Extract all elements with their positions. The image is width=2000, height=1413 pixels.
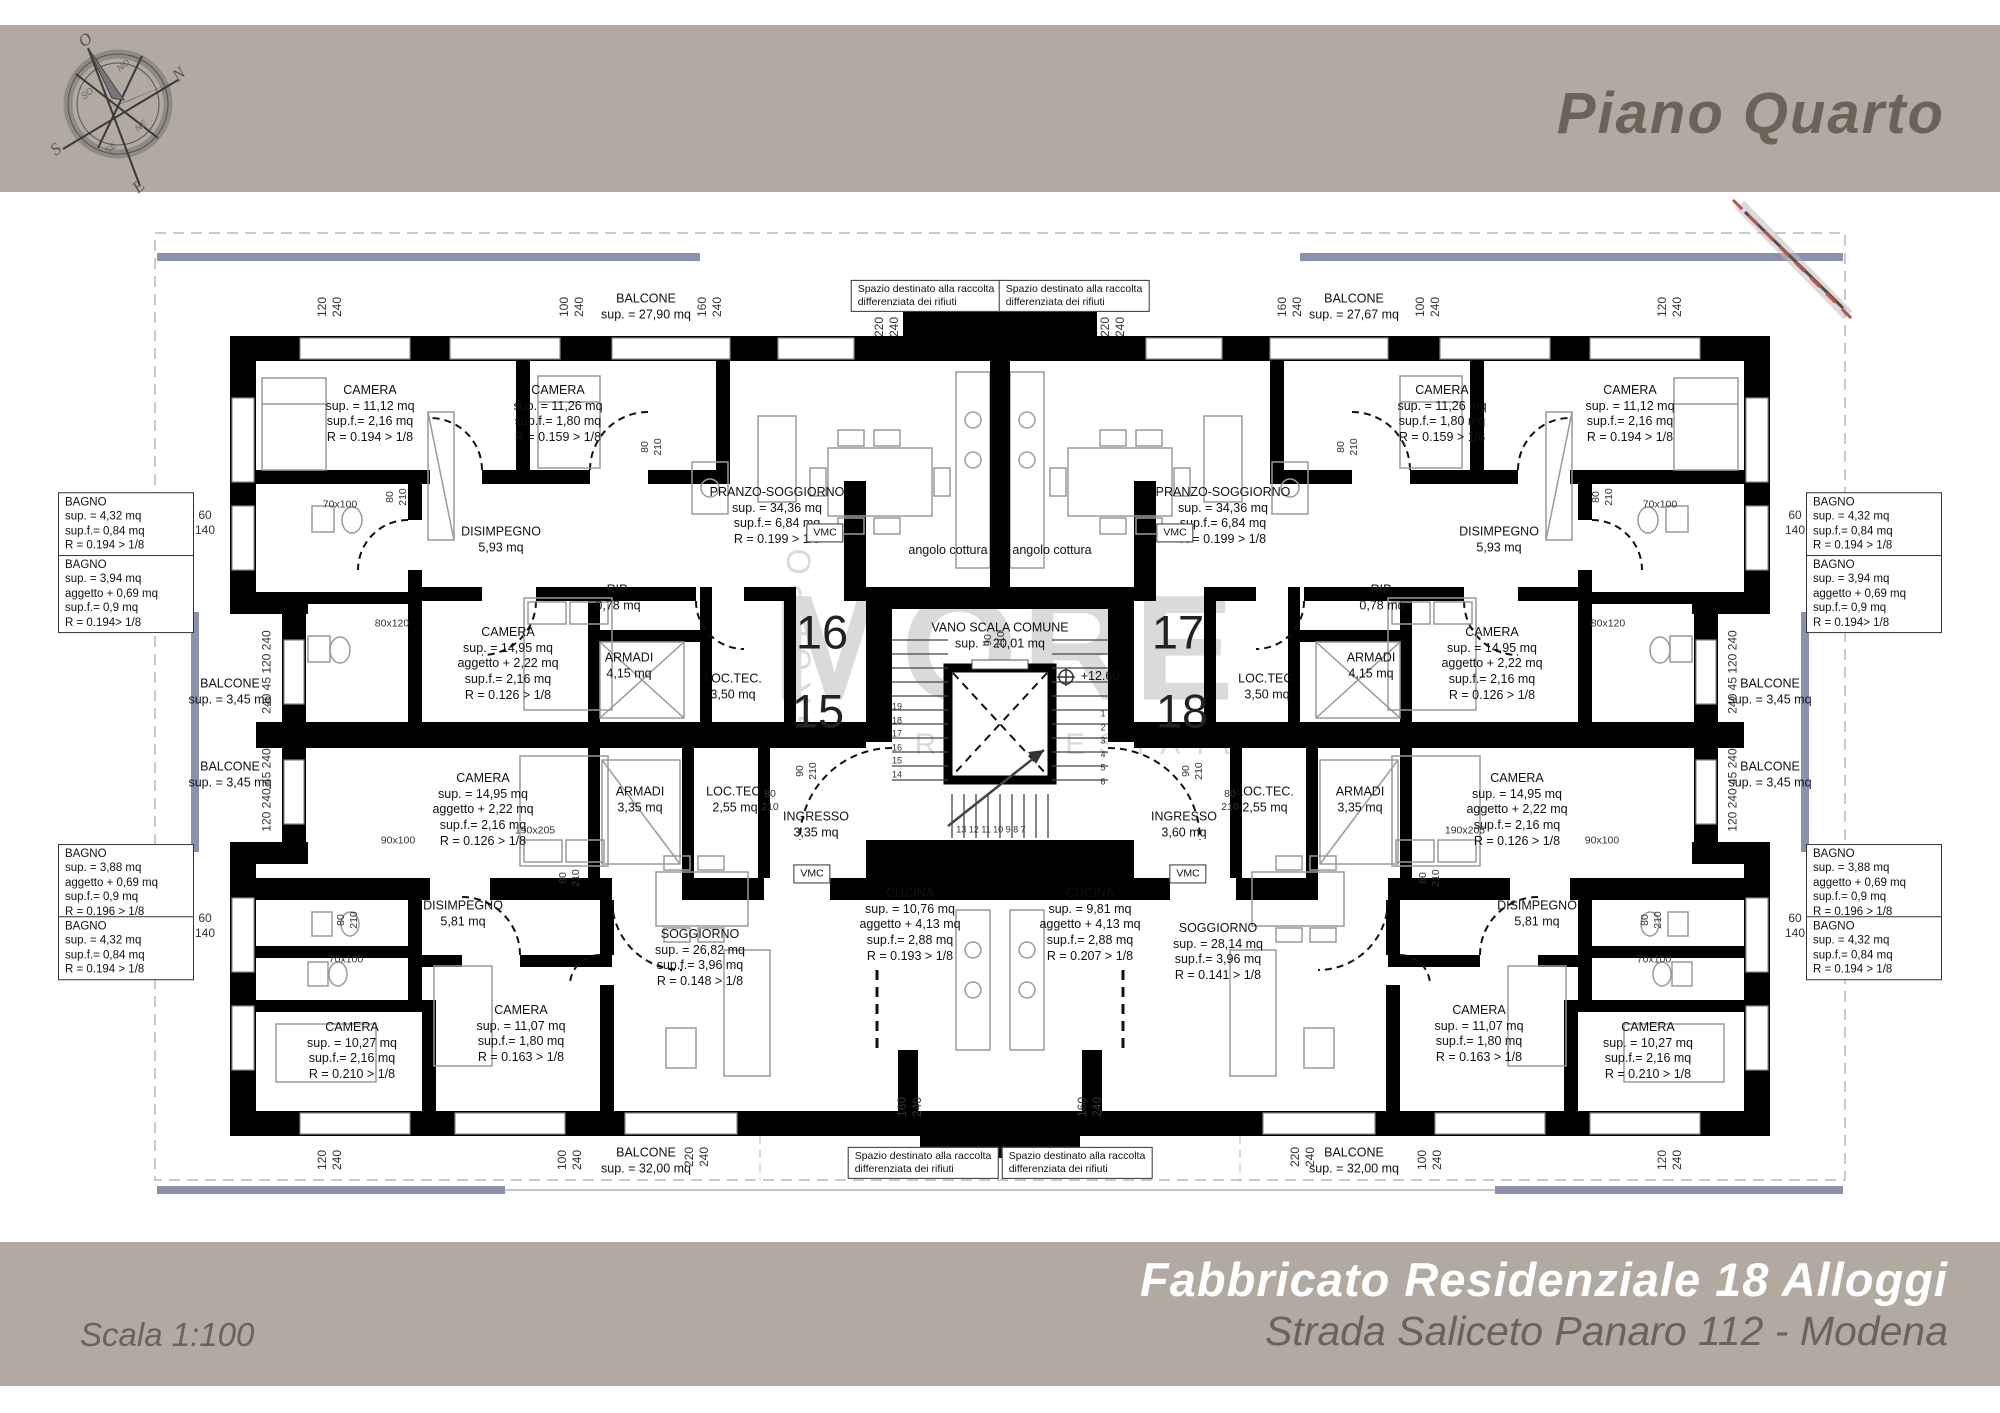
building-title: Fabbricato Residenziale 18 Alloggi bbox=[1140, 1252, 1948, 1307]
unit-number-15: 15 bbox=[792, 683, 844, 742]
label-cucina-right: CUCINA sup. = 9,81 mq aggetto + 4,13 mq … bbox=[1039, 886, 1140, 964]
floor-plan-drawing: O N S E NO SO NE SE bbox=[0, 0, 2000, 1413]
dim-door-2: 80 210 bbox=[639, 438, 665, 456]
dim-top-4: 220 240 bbox=[872, 317, 902, 337]
label-camera-1495-upper-right: CAMERA sup. = 14,95 mq aggetto + 2,22 mq… bbox=[1441, 625, 1542, 703]
dim-door-12: 80 210 bbox=[1639, 911, 1665, 929]
dim-bot-4: 160 240 bbox=[895, 1097, 925, 1117]
scale-note: Scala 1:100 bbox=[80, 1316, 254, 1354]
label-elevation: +12.60 bbox=[1081, 669, 1120, 685]
dim-70x100-2: 70x100 bbox=[1643, 498, 1677, 511]
dim-bot-8: 120 240 bbox=[1655, 1150, 1685, 1170]
dim-door-13: 90 210 bbox=[982, 631, 1008, 649]
label-camera-1027-bl: CAMERA sup. = 10,27 mq sup.f.= 2,16 mq R… bbox=[307, 1020, 397, 1083]
label-bagno-432-r1: BAGNO sup. = 4,32 mq sup.f.= 0,84 mq R =… bbox=[1806, 492, 1942, 556]
dim-door-6: 90 210 bbox=[1180, 762, 1206, 780]
stair-step-numbers-bottom: 13 12 11 10 9 8 7 bbox=[956, 823, 1025, 837]
stair-core bbox=[866, 284, 1134, 1158]
elevator bbox=[948, 660, 1052, 780]
dim-bot-7: 100 240 bbox=[1415, 1150, 1445, 1170]
note-recycling-bottom-right: Spazio destinato alla raccolta differenz… bbox=[1002, 1147, 1153, 1179]
label-angolo-cottura-left: angolo cottura bbox=[908, 543, 987, 559]
dim-60-140-r2: 60 140 bbox=[1785, 911, 1805, 941]
dim-top-6: 160 240 bbox=[1275, 297, 1305, 317]
page-title: Piano Quarto bbox=[1557, 80, 1945, 147]
dim-top-2: 100 240 bbox=[557, 297, 587, 317]
label-bagno-432-l1: BAGNO sup. = 4,32 mq sup.f.= 0,84 mq R =… bbox=[58, 492, 194, 556]
label-balcone-345-r1: BALCONE sup. = 3,45 mq bbox=[1728, 676, 1811, 707]
label-disimpegno-tr: DISIMPEGNO 5,93 mq bbox=[1459, 524, 1539, 555]
label-ingresso-360: INGRESSO 3,60 mq bbox=[1151, 809, 1217, 840]
stair-step-numbers-right: 1 2 3 4 5 6 bbox=[1100, 708, 1105, 789]
dim-bot-3: 220 240 bbox=[682, 1147, 712, 1167]
dim-70x100-1: 70x100 bbox=[323, 498, 357, 511]
label-disimpegno-br: DISIMPEGNO 5,81 mq bbox=[1497, 898, 1577, 929]
unit-number-17: 17 bbox=[1152, 604, 1204, 663]
label-armadi-415-left: ARMADI 4,15 mq bbox=[605, 650, 654, 681]
dim-bot-2: 100 240 bbox=[555, 1150, 585, 1170]
label-disimpegno-bl: DISIMPEGNO 5,81 mq bbox=[423, 898, 503, 929]
dim-bot-5: 160 240 bbox=[1075, 1097, 1105, 1117]
dim-top-7: 100 240 bbox=[1413, 297, 1443, 317]
staircase bbox=[892, 640, 1108, 838]
label-bagno-394-r2: BAGNO sup. = 3,94 mq aggetto + 0,69 mq s… bbox=[1806, 555, 1942, 633]
stair-step-numbers-left: 19 18 17 16 15 14 bbox=[892, 701, 902, 782]
label-camera-11-12-tr: CAMERA sup. = 11,12 mq sup.f.= 2,16 mq R… bbox=[1585, 383, 1674, 446]
floor-plan-sheet: Piano Quarto Scala 1:100 Fabbricato Resi… bbox=[0, 0, 2000, 1413]
label-loctec-255-right: LOC.TEC. 2,55 mq bbox=[1236, 784, 1294, 815]
label-loctec-350-left: LOC.TEC. 3,50 mq bbox=[704, 671, 762, 702]
note-recycling-bottom-left: Spazio destinato alla raccolta differenz… bbox=[848, 1147, 999, 1179]
label-balcone-top-left: BALCONE sup. = 27,90 mq bbox=[601, 291, 691, 322]
label-bagno-388-l3: BAGNO sup. = 3,88 mq aggetto + 0,69 mq s… bbox=[58, 844, 194, 922]
unit-number-18: 18 bbox=[1156, 683, 1208, 742]
label-cucina-left: CUCINA sup. = 10,76 mq aggetto + 4,13 mq… bbox=[859, 886, 960, 964]
dim-door-3: 80 210 bbox=[1335, 438, 1361, 456]
dim-door-10: 80 210 bbox=[1417, 869, 1443, 887]
label-camera-11-26-tl: CAMERA sup. = 11,26 mq sup.f.= 1,80 mq R… bbox=[513, 383, 602, 446]
dim-80x120-2: 80x120 bbox=[1591, 617, 1625, 630]
label-camera-11-26-tr: CAMERA sup. = 11,26 mq sup.f.= 1,80 mq R… bbox=[1397, 383, 1486, 446]
label-vmc-tl: VMC bbox=[806, 523, 843, 542]
label-disimpegno-tl: DISIMPEGNO 5,93 mq bbox=[461, 524, 541, 555]
label-camera-1107-br: CAMERA sup. = 11,07 mq sup.f.= 1,80 mq R… bbox=[1434, 1003, 1523, 1066]
dim-190x205-2: 190x205 bbox=[1445, 824, 1485, 837]
label-armadi-335-left: ARMADI 3,35 mq bbox=[616, 784, 665, 815]
label-bagno-432-r4: BAGNO sup. = 4,32 mq sup.f.= 0,84 mq R =… bbox=[1806, 916, 1942, 980]
dim-door-11: 80 210 bbox=[335, 911, 361, 929]
level-marker-icon bbox=[1057, 668, 1075, 686]
dim-80x120-1: 80x120 bbox=[375, 617, 409, 630]
dim-side-r1: 240 45 120 240 bbox=[1726, 630, 1741, 713]
dim-door-9: 80 210 bbox=[557, 869, 583, 887]
dim-90x100-1: 90x100 bbox=[381, 834, 415, 847]
dim-top-3: 160 240 bbox=[695, 297, 725, 317]
dim-top-5: 220 240 bbox=[1098, 317, 1128, 337]
label-ingresso-335: INGRESSO 3,35 mq bbox=[783, 809, 849, 840]
dim-door-1: 80 210 bbox=[384, 488, 410, 506]
dim-60-140-l2: 60 140 bbox=[195, 911, 215, 941]
label-bagno-432-l4: BAGNO sup. = 4,32 mq sup.f.= 0,84 mq R =… bbox=[58, 916, 194, 980]
label-angolo-cottura-right: angolo cottura bbox=[1012, 543, 1091, 559]
dim-top-1: 120 240 bbox=[315, 297, 345, 317]
label-vmc-tr: VMC bbox=[1156, 523, 1193, 542]
label-camera-1495-upper-left: CAMERA sup. = 14,95 mq aggetto + 2,22 mq… bbox=[457, 625, 558, 703]
dim-side-r2: 120 240 45 240 bbox=[1726, 748, 1741, 831]
note-recycling-top-left: Spazio destinato alla raccolta differenz… bbox=[851, 280, 1002, 312]
furniture-left-half bbox=[262, 372, 990, 1082]
dim-70x100-4: 70x100 bbox=[1637, 953, 1671, 966]
label-balcone-top-right: BALCONE sup. = 27,67 mq bbox=[1309, 291, 1399, 322]
label-loctec-350-right: LOC.TEC. 3,50 mq bbox=[1238, 671, 1296, 702]
label-vmc-bl: VMC bbox=[793, 864, 830, 883]
label-soggiorno-right: SOGGIORNO sup. = 28,14 mq sup.f.= 3,96 m… bbox=[1173, 921, 1263, 984]
plot-dashed-outline bbox=[155, 233, 1845, 1180]
watermark: GRUPPO MORE REAL ESTATE bbox=[0, 0, 2000, 1413]
stair-direction-arrow bbox=[1028, 750, 1044, 764]
label-loctec-255-left: LOC.TEC. 2,55 mq bbox=[706, 784, 764, 815]
dim-door-7: 80 210 bbox=[761, 788, 779, 814]
label-bagno-388-r3: BAGNO sup. = 3,88 mq aggetto + 0,69 mq s… bbox=[1806, 844, 1942, 922]
dim-bot-1: 120 240 bbox=[315, 1150, 345, 1170]
dim-60-140-r1: 60 140 bbox=[1785, 508, 1805, 538]
dim-bot-6: 220 240 bbox=[1288, 1147, 1318, 1167]
dim-60-140-l1: 60 140 bbox=[195, 508, 215, 538]
dim-side-l2: 120 240 45 240 bbox=[260, 748, 275, 831]
note-recycling-top-right: Spazio destinato alla raccolta differenz… bbox=[999, 280, 1150, 312]
label-soggiorno-left: SOGGIORNO sup. = 26,82 mq sup.f.= 3,96 m… bbox=[655, 927, 745, 990]
label-bagno-394-l2: BAGNO sup. = 3,94 mq aggetto + 0,69 mq s… bbox=[58, 555, 194, 633]
dim-top-8: 120 240 bbox=[1655, 297, 1685, 317]
label-balcone-bottom-left: BALCONE sup. = 32,00 mq bbox=[601, 1145, 691, 1176]
dim-door-4: 80 210 bbox=[1590, 488, 1616, 506]
dim-90x100-2: 90x100 bbox=[1585, 834, 1619, 847]
section-marker bbox=[1733, 200, 1855, 322]
dim-70x100-3: 70x100 bbox=[329, 953, 363, 966]
dim-door-5: 90 210 bbox=[794, 762, 820, 780]
building-address: Strada Saliceto Panaro 112 - Modena bbox=[1265, 1308, 1948, 1355]
label-rip-right: RIP. 0,78 mq bbox=[1359, 582, 1404, 613]
label-armadi-415-right: ARMADI 4,15 mq bbox=[1347, 650, 1396, 681]
label-armadi-335-right: ARMADI 3,35 mq bbox=[1336, 784, 1385, 815]
label-camera-1027-br: CAMERA sup. = 10,27 mq sup.f.= 2,16 mq R… bbox=[1603, 1020, 1693, 1083]
dim-side-l1: 240 45 120 240 bbox=[260, 630, 275, 713]
label-vmc-br: VMC bbox=[1169, 864, 1206, 883]
label-rip-left: RIP. 0,78 mq bbox=[595, 582, 640, 613]
label-camera-11-12-tl: CAMERA sup. = 11,12 mq sup.f.= 2,16 mq R… bbox=[325, 383, 414, 446]
dim-190x205-1: 190x205 bbox=[515, 824, 555, 837]
label-camera-1107-bl: CAMERA sup. = 11,07 mq sup.f.= 1,80 mq R… bbox=[476, 1003, 565, 1066]
label-balcone-345-r2: BALCONE sup. = 3,45 mq bbox=[1728, 759, 1811, 790]
unit-number-16: 16 bbox=[796, 604, 848, 663]
dim-door-8: 80 210 bbox=[1221, 788, 1239, 814]
label-balcone-bottom-right: BALCONE sup. = 32,00 mq bbox=[1309, 1145, 1399, 1176]
